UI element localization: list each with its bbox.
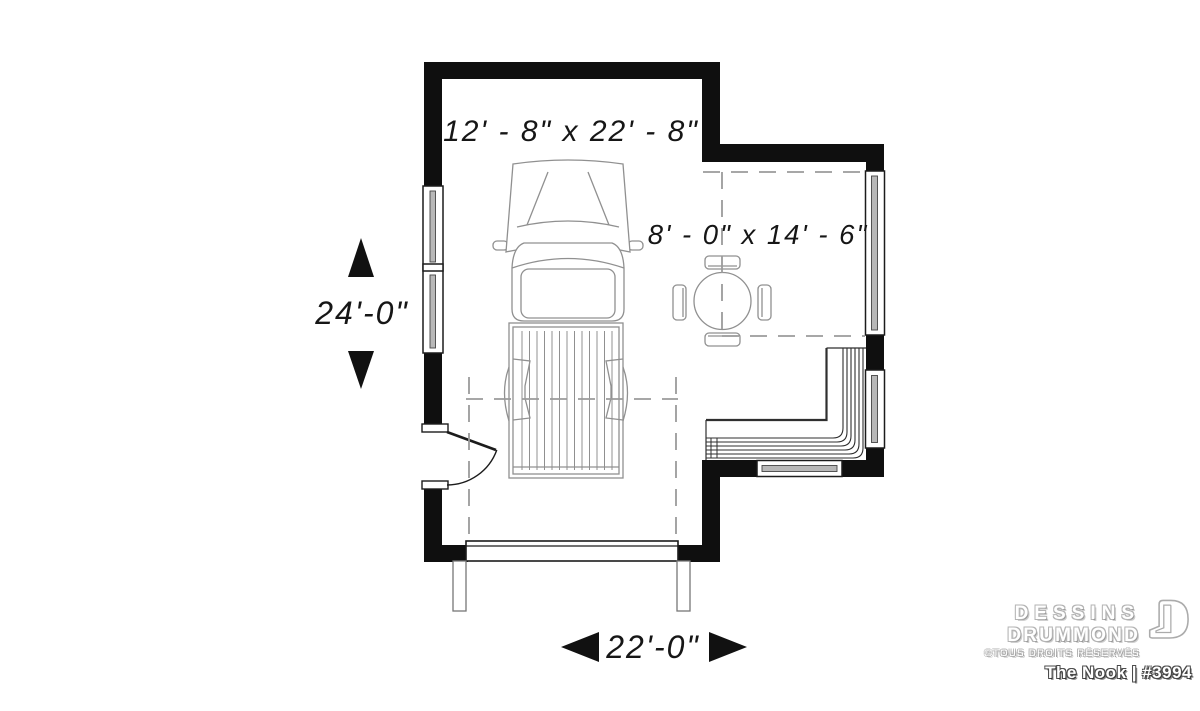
wall-segment [842, 460, 884, 477]
window-left [423, 186, 443, 353]
arrow-up-icon [348, 238, 374, 277]
garage-door-posts [453, 561, 690, 611]
truck-cab [512, 243, 624, 321]
pickup-truck [493, 160, 643, 478]
wall-segment [866, 162, 884, 171]
brand-text: DESSINS DRUMMOND ©TOUS DROITS RÉSERVÉS [985, 597, 1140, 659]
wall-segment [424, 62, 720, 79]
width-dimension-label: 22'-0" [605, 629, 700, 665]
chair [705, 333, 740, 346]
door-leaf [447, 432, 496, 450]
window-bottom [757, 461, 842, 477]
wall-segment [424, 545, 468, 562]
chair [673, 285, 686, 320]
wall-segment [424, 353, 442, 425]
brand-name-line2: DRUMMOND [985, 626, 1140, 646]
entry-door [422, 424, 497, 489]
stair-treads [706, 348, 863, 458]
plan-title: The Nook | #3994 [962, 663, 1192, 683]
drummond-d-icon [1145, 597, 1192, 643]
window-stair-right [866, 370, 885, 448]
arrow-right-icon [709, 632, 747, 662]
wall-segment [702, 460, 757, 477]
truck-hood [506, 160, 630, 252]
wall-segment [678, 545, 720, 562]
wall-segment [424, 62, 442, 186]
brand-block: DESSINS DRUMMOND ©TOUS DROITS RÉSERVÉS T… [962, 597, 1192, 683]
truck-wheel [623, 367, 628, 421]
floor-plan-page: 12' - 8" x 22' - 8" 8' - 0" x 14' - 6" 2… [0, 0, 1200, 711]
nook-dimension-label: 8' - 0" x 14' - 6" [648, 219, 868, 250]
staircase [706, 348, 866, 460]
brand-rights: ©TOUS DROITS RÉSERVÉS [985, 649, 1140, 659]
wall-segment [866, 335, 884, 370]
stair-risers [711, 438, 717, 458]
window-dinette-right [866, 171, 885, 335]
stair-inner-edge [706, 348, 827, 420]
door-swing-arc [447, 450, 497, 485]
garage-door [466, 541, 678, 561]
depth-dimension-label: 24'-0" [314, 295, 409, 331]
chair [758, 285, 771, 320]
brand-logo: DESSINS DRUMMOND ©TOUS DROITS RÉSERVÉS [962, 597, 1192, 659]
truck-wheel [505, 367, 510, 421]
arrow-left-icon [561, 632, 599, 662]
arrow-down-icon [348, 351, 374, 389]
garage-dimension-label: 12' - 8" x 22' - 8" [443, 115, 699, 148]
brand-name-line1: DESSINS [985, 604, 1140, 624]
wall-segment [702, 144, 884, 162]
